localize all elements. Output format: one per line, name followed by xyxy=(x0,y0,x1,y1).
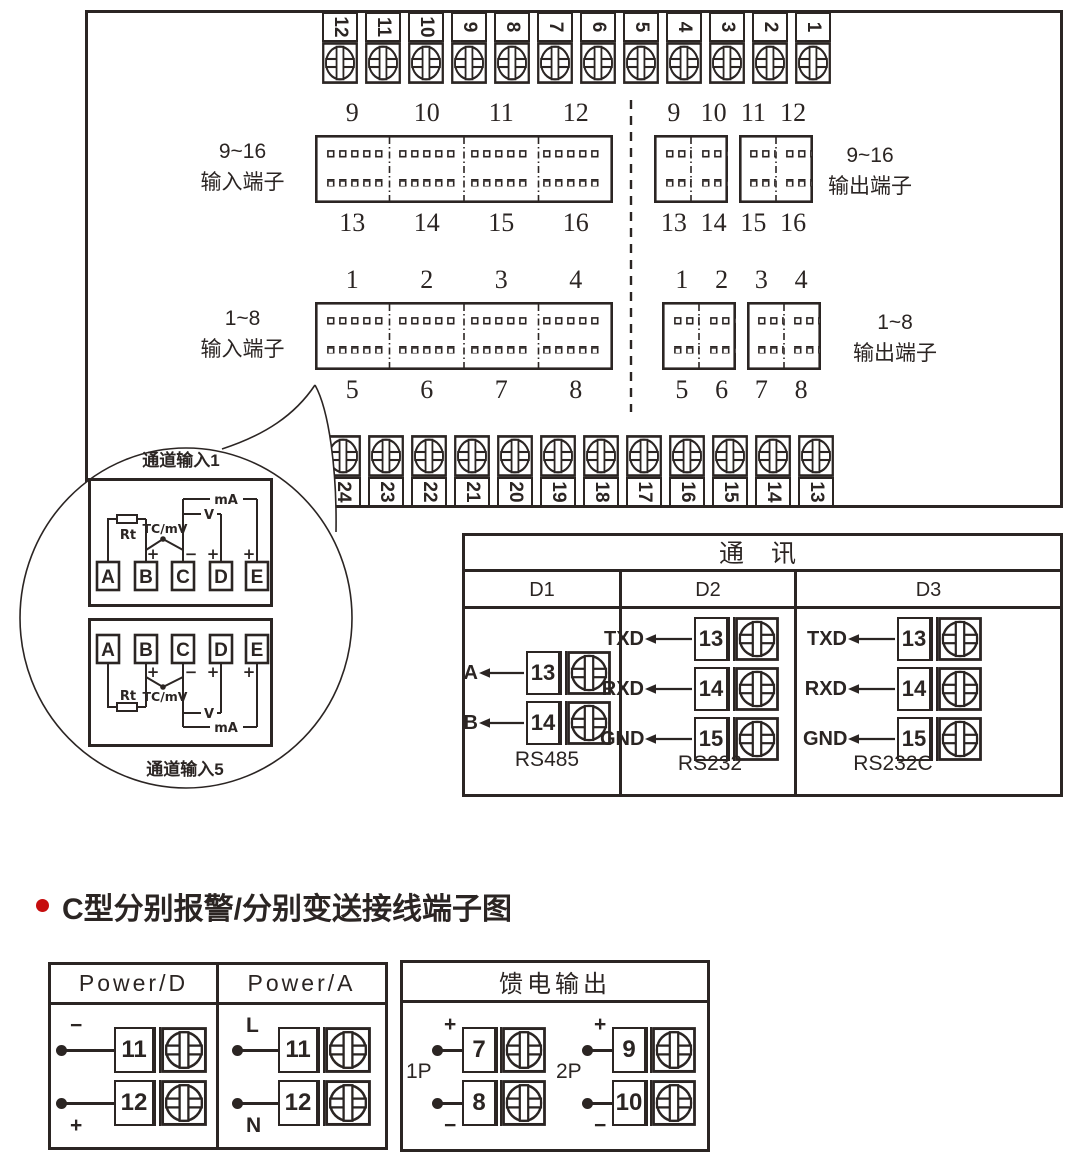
terminal-number-label: 23 xyxy=(373,476,399,508)
svg-text:C: C xyxy=(176,640,190,661)
arrow-left-icon xyxy=(847,732,897,746)
channel-1-terminals: A B C D E xyxy=(97,562,268,590)
svg-text:B: B xyxy=(139,640,153,661)
screw-icon xyxy=(755,435,791,477)
screw-icon xyxy=(735,667,779,711)
channel-5-wiring: Rt TC/mV V mA + − + + A B C D E xyxy=(91,621,270,744)
bullet-icon xyxy=(36,899,49,912)
terminal-number-label: 18 xyxy=(588,476,614,508)
bottom-terminal-18: 18 xyxy=(583,435,619,507)
screw-icon xyxy=(537,42,573,84)
svg-text:E: E xyxy=(251,640,264,661)
tc-mv-label: TC/mV xyxy=(143,521,188,536)
screw-icon xyxy=(795,42,831,84)
terminal-14: 14 xyxy=(526,701,611,745)
screw-icon xyxy=(735,617,779,661)
screw-icon xyxy=(322,42,358,84)
comm-col-d1: D1 xyxy=(465,577,619,603)
terminal-number-label: 9 xyxy=(456,11,482,43)
screw-icon xyxy=(938,617,982,661)
top-terminal-7: 7 xyxy=(537,12,573,84)
output-18-bottom-numbers: 5678 xyxy=(662,375,821,405)
top-terminal-5: 5 xyxy=(623,12,659,84)
svg-text:+: + xyxy=(243,663,256,681)
bottom-terminal-14: 14 xyxy=(755,435,791,507)
v-label: V xyxy=(204,707,214,722)
screw-icon xyxy=(709,42,745,84)
svg-text:+: + xyxy=(147,545,160,563)
terminal-number-label: 12 xyxy=(327,11,353,43)
feed-group-2p-label: 2P xyxy=(556,1060,582,1084)
label-output-9-16: 9~16 输出端子 xyxy=(785,140,955,202)
power-a-header: Power/A xyxy=(219,968,384,998)
resistor-icon xyxy=(117,703,137,711)
bottom-terminal-15: 15 xyxy=(712,435,748,507)
screw-icon xyxy=(368,435,404,477)
top-terminal-12: 12 xyxy=(322,12,358,84)
svg-text:−: − xyxy=(185,545,198,563)
terminal-number-label: 21 xyxy=(459,476,485,508)
top-terminal-10: 10 xyxy=(408,12,444,84)
screw-icon xyxy=(365,42,401,84)
svg-text:B: B xyxy=(139,567,153,588)
label-input-1-8: 1~8 输入端子 xyxy=(150,303,335,365)
bottom-terminal-22: 22 xyxy=(411,435,447,507)
screw-icon xyxy=(494,42,530,84)
wire xyxy=(437,1049,464,1052)
top-terminal-8: 8 xyxy=(494,12,530,84)
screw-icon xyxy=(325,1080,371,1126)
rt-label: Rt xyxy=(120,528,136,543)
terminal-12: 12 xyxy=(278,1080,371,1126)
arrow-left-icon xyxy=(644,632,694,646)
screw-icon xyxy=(938,667,982,711)
screw-icon xyxy=(454,435,490,477)
bottom-terminal-16: 16 xyxy=(669,435,705,507)
wire xyxy=(587,1049,614,1052)
screw-icon xyxy=(161,1080,207,1126)
bottom-terminal-21: 21 xyxy=(454,435,490,507)
power-d-header: Power/D xyxy=(51,968,216,998)
arrow-left-icon xyxy=(847,682,897,696)
input-916-bottom-numbers: 13141516 xyxy=(315,208,613,238)
svg-text:−: − xyxy=(185,663,198,681)
svg-text:C: C xyxy=(176,567,190,588)
channel-1-wiring: Rt TC/mV V mA + − + + A B C D E xyxy=(91,481,270,604)
label-text: 输入端子 xyxy=(150,167,335,198)
label-output-1-8: 1~8 输出端子 xyxy=(810,307,980,369)
top-terminal-3: 3 xyxy=(709,12,745,84)
bottom-terminal-20: 20 xyxy=(497,435,533,507)
svg-text:+: + xyxy=(207,545,220,563)
terminal-number-label: 11 xyxy=(370,11,396,43)
comm-title: 通 讯 xyxy=(462,537,1063,567)
terminal-number-label: 16 xyxy=(674,476,700,508)
power-a-row-l: L 11 xyxy=(232,1026,384,1074)
wire xyxy=(237,1049,280,1052)
feed-row-10: − 10 xyxy=(582,1079,707,1127)
comm-col-d2: D2 xyxy=(622,577,794,603)
channel-5-terminals: A B C D E xyxy=(97,635,268,663)
terminal-number-label: 10 xyxy=(413,11,439,43)
channel-5-box: Rt TC/mV V mA + − + + A B C D E xyxy=(88,618,273,747)
power-d-row-minus: − 11 xyxy=(56,1026,214,1074)
screw-icon xyxy=(666,42,702,84)
dashed-divider xyxy=(628,100,634,412)
junction-dot-icon xyxy=(160,536,166,542)
input-block-9-16 xyxy=(315,135,613,203)
screw-icon xyxy=(712,435,748,477)
terminal-number-label: 19 xyxy=(545,476,571,508)
svg-text:D: D xyxy=(214,567,228,588)
terminal-13: 13 xyxy=(897,617,982,661)
terminal-number-label: 2 xyxy=(757,11,783,43)
wire xyxy=(61,1049,116,1052)
comm-d2-row-rxd: RXD 14 xyxy=(600,666,800,712)
bottom-terminal-23: 23 xyxy=(368,435,404,507)
wire xyxy=(237,1102,280,1105)
screw-icon xyxy=(451,42,487,84)
svg-text:A: A xyxy=(101,567,115,588)
arrow-left-icon xyxy=(478,716,526,730)
screw-icon xyxy=(502,1027,546,1073)
ma-label: mA xyxy=(214,493,238,508)
terminal-number: 12 xyxy=(322,12,358,42)
label-input-9-16: 9~16 输入端子 xyxy=(150,136,335,198)
input-18-top-numbers: 1234 xyxy=(315,265,613,295)
terminal-number-label: 7 xyxy=(542,11,568,43)
wire xyxy=(437,1102,464,1105)
terminal-number-label: 22 xyxy=(416,476,442,508)
comm-col-d3: D3 xyxy=(797,577,1060,603)
top-terminal-11: 11 xyxy=(365,12,401,84)
feed-row-7: + 7 xyxy=(432,1026,554,1074)
comm-d3-footer: RS232C xyxy=(808,752,978,776)
top-terminal-9: 9 xyxy=(451,12,487,84)
wire xyxy=(587,1102,614,1105)
screw-icon xyxy=(798,435,834,477)
terminal-12: 12 xyxy=(114,1080,207,1126)
terminal-14: 14 xyxy=(897,667,982,711)
tc-mv-label: TC/mV xyxy=(143,689,188,704)
wiring-diagram-page: 12 11 10 9 8 7 6 5 4 3 2 1 9~16 输入端子 910… xyxy=(0,0,1080,1158)
power-d-row-plus: + 12 xyxy=(56,1079,214,1127)
screw-icon xyxy=(652,1080,696,1126)
comm-d3-row-rxd: RXD 14 xyxy=(803,666,1003,712)
output-916-top-numbers: 9101112 xyxy=(654,98,813,128)
power-a-row-n: N 12 xyxy=(232,1079,384,1127)
bottom-terminal-13: 13 xyxy=(798,435,834,507)
screw-icon xyxy=(626,435,662,477)
top-terminal-6: 6 xyxy=(580,12,616,84)
arrow-left-icon xyxy=(644,682,694,696)
bottom-terminal-17: 17 xyxy=(626,435,662,507)
terminal-number-label: 17 xyxy=(631,476,657,508)
terminal-number-label: 3 xyxy=(714,11,740,43)
terminal-9: 9 xyxy=(612,1027,696,1073)
screw-icon xyxy=(161,1027,207,1073)
arrow-left-icon xyxy=(644,732,694,746)
comm-d2-row-txd: TXD 13 xyxy=(600,616,800,662)
bottom-terminal-19: 19 xyxy=(540,435,576,507)
arrow-left-icon xyxy=(478,666,526,680)
feed-group-1p-label: 1P xyxy=(406,1060,432,1084)
svg-text:+: + xyxy=(147,663,160,681)
resistor-icon xyxy=(117,515,137,523)
screw-icon xyxy=(652,1027,696,1073)
screw-icon xyxy=(540,435,576,477)
terminal-13: 13 xyxy=(526,651,611,695)
wire xyxy=(61,1102,116,1105)
svg-text:+: + xyxy=(243,545,256,563)
screw-icon xyxy=(583,435,619,477)
svg-text:E: E xyxy=(251,567,264,588)
terminal-11: 11 xyxy=(278,1027,371,1073)
comm-d2-footer: RS232 xyxy=(630,752,790,776)
terminal-number-label: 8 xyxy=(499,11,525,43)
terminal-number-label: 5 xyxy=(628,11,654,43)
screw-icon xyxy=(408,42,444,84)
screw-icon xyxy=(580,42,616,84)
top-terminal-1: 1 xyxy=(795,12,831,84)
terminal-14: 14 xyxy=(694,667,779,711)
output-18-top-numbers: 1234 xyxy=(662,265,821,295)
output-block-1-8 xyxy=(662,302,821,370)
terminal-number-label: 13 xyxy=(803,476,829,508)
terminal-13: 13 xyxy=(694,617,779,661)
screw-icon xyxy=(411,435,447,477)
terminal-number-label: 4 xyxy=(671,11,697,43)
top-terminal-4: 4 xyxy=(666,12,702,84)
screw-icon xyxy=(623,42,659,84)
top-terminal-2: 2 xyxy=(752,12,788,84)
terminal-10: 10 xyxy=(612,1080,696,1126)
channel-1-box: Rt TC/mV V mA + − + + A B C D E xyxy=(88,478,273,607)
terminal-number-label: 1 xyxy=(800,11,826,43)
terminal-7: 7 xyxy=(462,1027,546,1073)
v-label: V xyxy=(204,508,214,523)
terminal-number-label: 6 xyxy=(585,11,611,43)
terminal-8: 8 xyxy=(462,1080,546,1126)
svg-text:D: D xyxy=(214,640,228,661)
screw-icon xyxy=(502,1080,546,1126)
screw-icon xyxy=(669,435,705,477)
feed-row-8: − 8 xyxy=(432,1079,554,1127)
input-916-top-numbers: 9101112 xyxy=(315,98,613,128)
svg-text:+: + xyxy=(207,663,220,681)
screw-icon xyxy=(497,435,533,477)
channel-5-label: 通道输入5 xyxy=(100,755,270,780)
arrow-left-icon xyxy=(847,632,897,646)
screw-icon xyxy=(325,1027,371,1073)
feed-title: 馈电输出 xyxy=(403,966,707,996)
input-block-1-8 xyxy=(315,302,613,370)
terminal-number-label: 20 xyxy=(502,476,528,508)
rt-label: Rt xyxy=(120,689,136,704)
svg-text:A: A xyxy=(101,640,115,661)
screw-icon xyxy=(752,42,788,84)
channel-1-label: 通道输入1 xyxy=(96,446,266,471)
terminal-11: 11 xyxy=(114,1027,207,1073)
comm-d3-row-txd: TXD 13 xyxy=(803,616,1003,662)
label-range: 9~16 xyxy=(150,136,335,167)
ma-label: mA xyxy=(214,721,238,736)
terminal-number-label: 14 xyxy=(760,476,786,508)
output-916-bottom-numbers: 13141516 xyxy=(654,208,813,238)
feed-row-9: + 9 xyxy=(582,1026,707,1074)
terminal-number-label: 15 xyxy=(717,476,743,508)
section-title: C型分别报警/分别变送接线端子图 xyxy=(62,884,512,928)
